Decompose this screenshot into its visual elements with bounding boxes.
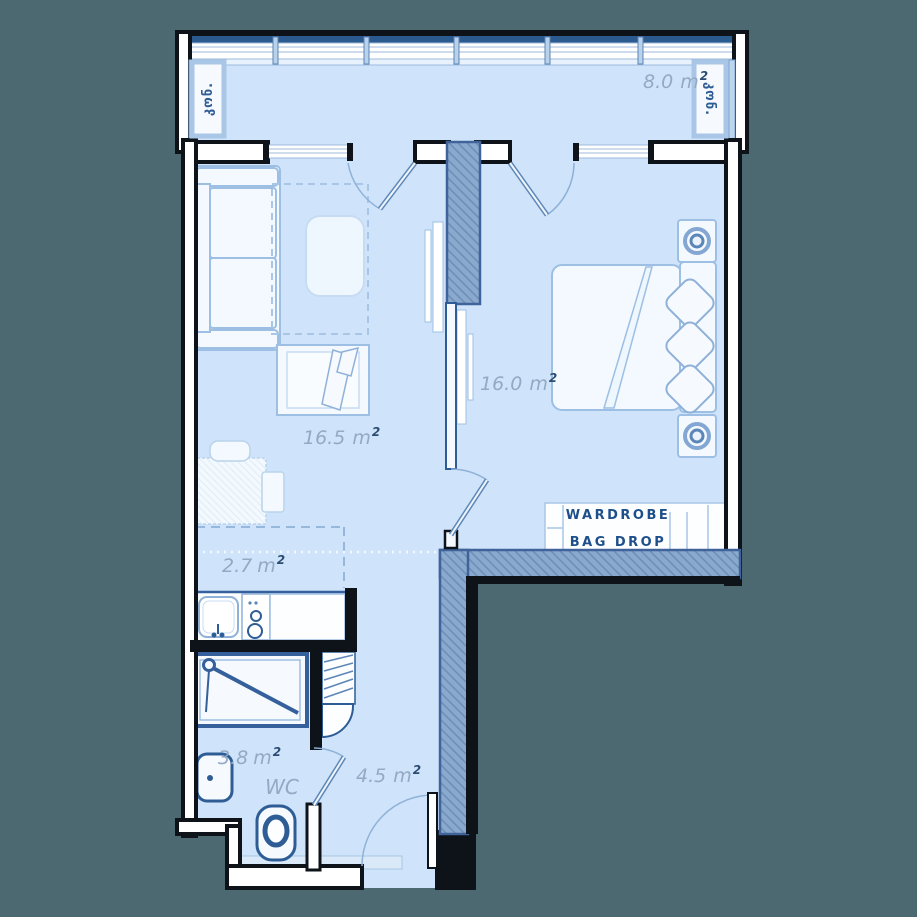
counter-fridge: [270, 594, 345, 640]
double-bed: [552, 262, 717, 416]
central-pier: [447, 142, 480, 304]
balcony-side-glazing: [729, 60, 735, 144]
wc-label: WC: [265, 775, 299, 799]
bottom-wall: [227, 866, 362, 888]
window: [266, 145, 350, 158]
partition-wall: [446, 303, 456, 469]
wc-door-post: [307, 804, 320, 870]
kitchen-sink: [199, 597, 238, 638]
sofa: [194, 166, 280, 350]
shower: [193, 654, 307, 726]
nightstand-top: [678, 220, 716, 262]
stove: [242, 594, 270, 640]
desk-chair-side: [262, 472, 284, 512]
ac-unit-left: კონ.: [192, 62, 224, 136]
hatched-wall-horizontal: [440, 550, 740, 578]
hatched-wall-vertical: [440, 550, 468, 834]
tv-panel-living: [425, 222, 443, 332]
kitchen-counter: [193, 592, 345, 642]
toilet: [257, 806, 295, 860]
right-outer-wall: [726, 140, 740, 584]
wardrobe: WARDROBE BAG DROP: [545, 503, 725, 553]
bedroom-area-label: 16.0m2: [480, 371, 557, 395]
left-outer-wall: [183, 140, 196, 836]
burner-icon: [248, 624, 262, 638]
armchair: [277, 345, 369, 415]
ac-right-label: კონ.: [702, 82, 717, 116]
wardrobe-label: WARDROBE: [566, 508, 670, 523]
bathroom-right-wall: [310, 652, 322, 750]
floor-plan-canvas: WARDROBE BAG DROP: [0, 0, 917, 917]
balcony-left-wall: [177, 32, 190, 152]
entrance-door-leaf: [428, 793, 437, 868]
balcony-glazing-wall: [177, 30, 747, 65]
window: [576, 145, 652, 158]
kitchen-bathroom-wall: [190, 640, 357, 652]
living-room-area-label: 16.5m2: [303, 425, 380, 449]
hatched-wall-outer-edge: [466, 578, 478, 834]
drain-icon: [207, 775, 213, 781]
bag-drop-label: BAG DROP: [570, 535, 667, 550]
balcony-right-wall: [734, 32, 747, 152]
nightstand-bottom: [678, 415, 716, 457]
pillows: [663, 276, 717, 416]
hatched-wall-bottom-edge: [466, 576, 740, 584]
ac-left-label: კონ.: [201, 82, 216, 116]
desk-chair-top: [210, 441, 250, 461]
coffee-table: [306, 216, 364, 296]
faucet-icon: [212, 633, 217, 638]
floor-plan-drawing: WARDROBE BAG DROP: [0, 0, 917, 917]
burner-icon: [251, 611, 261, 621]
bottom-right-corner-wall: [435, 830, 476, 890]
